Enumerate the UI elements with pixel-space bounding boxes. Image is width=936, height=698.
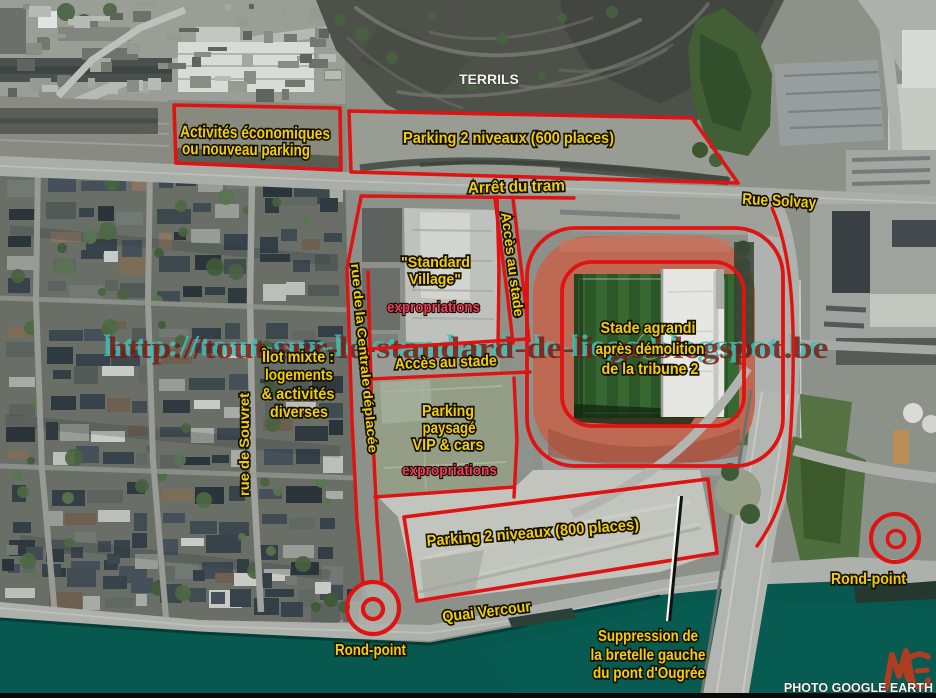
svg-text:VIP & cars: VIP & cars xyxy=(413,437,484,454)
svg-text:Parking 2 niveaux (600 places): Parking 2 niveaux (600 places) xyxy=(403,130,614,147)
svg-text:paysagé: paysagé xyxy=(423,420,476,437)
svg-text:& activités: & activités xyxy=(262,386,335,403)
svg-text:de la tribune 2: de la tribune 2 xyxy=(602,361,699,378)
svg-text:diverses: diverses xyxy=(270,404,328,421)
svg-text:expropriations: expropriations xyxy=(402,463,497,479)
svg-text:rue de Souvret: rue de Souvret xyxy=(237,393,252,496)
svg-text:ou nouveau parking: ou nouveau parking xyxy=(182,140,310,160)
svg-text:Parking: Parking xyxy=(422,403,474,420)
svg-text:Village": Village" xyxy=(409,271,461,288)
svg-text:Accès au stade: Accès au stade xyxy=(395,352,498,373)
svg-text:Îlot mixte :: Îlot mixte : xyxy=(261,348,334,366)
svg-text:"Standard: "Standard xyxy=(401,254,470,271)
svg-text:Rond-point: Rond-point xyxy=(831,571,906,588)
svg-text:logements: logements xyxy=(265,367,333,384)
svg-text:expropriations: expropriations xyxy=(387,300,480,316)
svg-text:Rond-point: Rond-point xyxy=(335,642,406,659)
svg-text:du pont d'Ougrée: du pont d'Ougrée xyxy=(593,665,705,682)
svg-text:Arrêt du tram: Arrêt du tram xyxy=(468,177,565,197)
svg-text:après démolition: après démolition xyxy=(596,341,705,358)
svg-text:PHOTO GOOGLE EARTH: PHOTO GOOGLE EARTH xyxy=(784,681,933,695)
svg-text:TERRILS: TERRILS xyxy=(459,71,519,87)
svg-text:la bretelle gauche: la bretelle gauche xyxy=(591,647,706,664)
svg-text:Suppression de: Suppression de xyxy=(598,628,698,645)
svg-text:Stade agrandi: Stade agrandi xyxy=(601,320,696,337)
